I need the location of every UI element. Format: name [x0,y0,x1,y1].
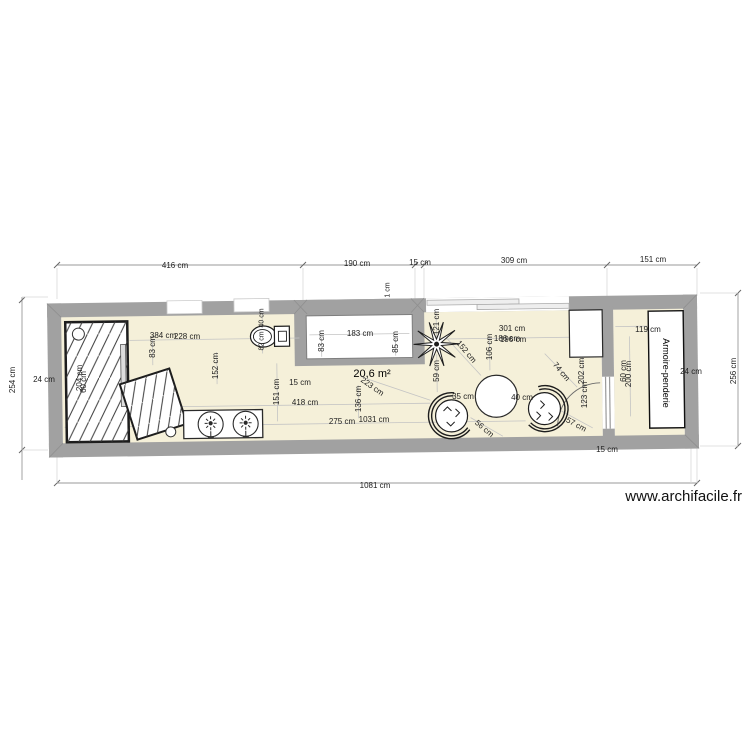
dim-label: 123 cm [581,382,589,408]
dim-label: 60 cm [80,371,88,393]
dim-label: 202 cm [578,358,586,384]
dim-label: 59 cm [433,360,441,382]
floor-plan-canvas: 416 cm190 cm15 cm309 cm151 cm254 cm256 c… [0,0,750,750]
dim-label: 40 cm [259,308,266,327]
dim-label: 151 cm [640,256,666,264]
dim-label: 136 cm [355,386,363,412]
dim-label: 301 cm [499,325,525,333]
dim-label: 196 cm [500,336,526,344]
dim-label: 57 cm [564,416,587,433]
wardrobe-label: Armoire-penderie [661,338,671,408]
dim-label: 85 cm [392,331,400,353]
dim-label: 190 cm [344,260,370,268]
dim-label: 152 cm [455,339,478,364]
dim-label: 24 cm [33,376,55,384]
dim-label: 83 cm [149,336,157,358]
dim-label: 119 cm [635,326,661,334]
dim-label: 1031 cm [359,416,390,424]
dim-label: 200 cm [625,361,633,387]
dim-label: 56 cm [473,419,495,439]
dim-label: 183 cm [347,330,373,338]
dim-label: 15 cm [409,259,431,267]
dim-label: 152 cm [212,353,220,379]
dim-label: 82 cm [259,331,266,350]
dim-label: 106 cm [486,334,494,360]
dim-label: 40 cm [511,394,533,402]
dim-label: 15 cm [289,379,311,387]
dim-label: 1081 cm [360,482,391,490]
dim-label: 416 cm [162,262,188,270]
dim-label: 275 cm [329,418,355,426]
dim-label: 228 cm [174,333,200,341]
dim-label: 309 cm [501,257,527,265]
dim-label: 1 cm [385,282,392,297]
dim-label: 74 cm [551,361,571,383]
dim-label: 151 cm [273,379,281,405]
watermark: www.archifacile.fr [625,488,742,505]
dim-label: 83 cm [318,330,326,352]
room-area-label: 20,6 m² [353,368,390,380]
dim-label: 24 cm [680,368,702,376]
dim-label: 121 cm [433,309,441,335]
dim-label: 35 cm [452,393,474,401]
dim-label: 256 cm [730,358,738,384]
dim-label: 254 cm [9,367,17,393]
dim-label: 418 cm [292,399,318,407]
dim-label: 15 cm [596,446,618,454]
